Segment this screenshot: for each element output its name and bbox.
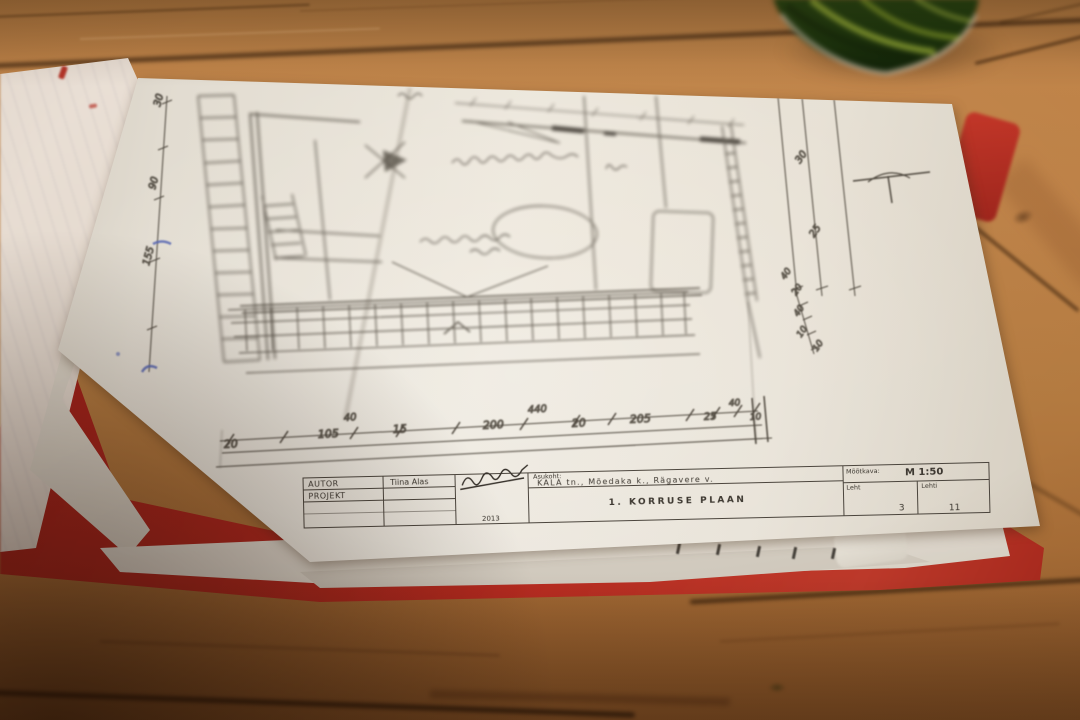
dim-value: 440: [527, 404, 547, 416]
sheet-crease: [345, 88, 410, 420]
dim-value: 155: [141, 245, 157, 266]
dim-value: 105: [317, 427, 339, 441]
dim-value: 25: [704, 411, 717, 423]
scale-label: Mõõtkava:: [846, 467, 880, 476]
lehti-value: 11: [949, 503, 961, 513]
stairs-small: [262, 194, 306, 260]
dim-value: 20: [223, 437, 238, 451]
section-marker: [853, 172, 930, 203]
photo-scene: 20 40 105 15 200 440 20 205 25 40 10 30 …: [0, 0, 1080, 720]
title-block-frame: [303, 462, 990, 528]
leht-label: Leht: [846, 483, 861, 491]
dimension-lines-right: [778, 97, 861, 354]
table-oval: [492, 203, 599, 260]
title-block-grid-faint: [304, 511, 456, 514]
dimension-line-left: [147, 96, 172, 372]
wall-top-window: [604, 133, 616, 134]
dim-value: 40: [779, 266, 794, 281]
gable-v-line: [392, 262, 548, 297]
dim-value: 30: [152, 93, 166, 108]
dim-value: 20: [790, 282, 805, 297]
kitchen-counter: [651, 211, 714, 293]
dim-value: 15: [392, 422, 407, 436]
dim-value: 10: [750, 412, 762, 423]
projekt-label: PROJEKT: [308, 491, 345, 501]
dim-value: 40: [792, 303, 807, 318]
title-block: AUTOR PROJEKT Tiina Alas 2013 Asukoht: K…: [303, 454, 990, 528]
dimension-line-top: [455, 98, 744, 127]
signature: [460, 465, 529, 490]
floor-plan-walls: [198, 88, 760, 420]
drawing-title: 1. KORRUSE PLAAN: [609, 495, 747, 508]
door-swing: [470, 121, 560, 143]
autor-label: AUTOR: [308, 479, 339, 489]
dim-value: 25: [807, 223, 823, 240]
scale-value: M 1:50: [905, 466, 944, 478]
wall-left: [250, 112, 360, 360]
dim-value: 10: [795, 324, 810, 339]
lehti-label: Lehti: [921, 482, 937, 490]
wall-right-hatched: [722, 125, 760, 358]
blue-ink-dot: [116, 352, 120, 356]
dim-value: 90: [147, 176, 161, 191]
floor-plan-middle: [220, 262, 756, 468]
signature-year: 2013: [482, 515, 500, 523]
blue-ink-mark: [153, 242, 171, 245]
dim-value: 200: [482, 418, 504, 432]
title-block-grid: [303, 462, 990, 528]
dim-value: 20: [571, 416, 586, 430]
dim-value: 205: [629, 412, 651, 426]
leht-value: 3: [899, 503, 905, 513]
wall-interior: [276, 96, 666, 300]
author-name: Tiina Alas: [389, 477, 429, 487]
dim-value: 40: [729, 398, 741, 409]
dim-value: 40: [343, 412, 356, 424]
